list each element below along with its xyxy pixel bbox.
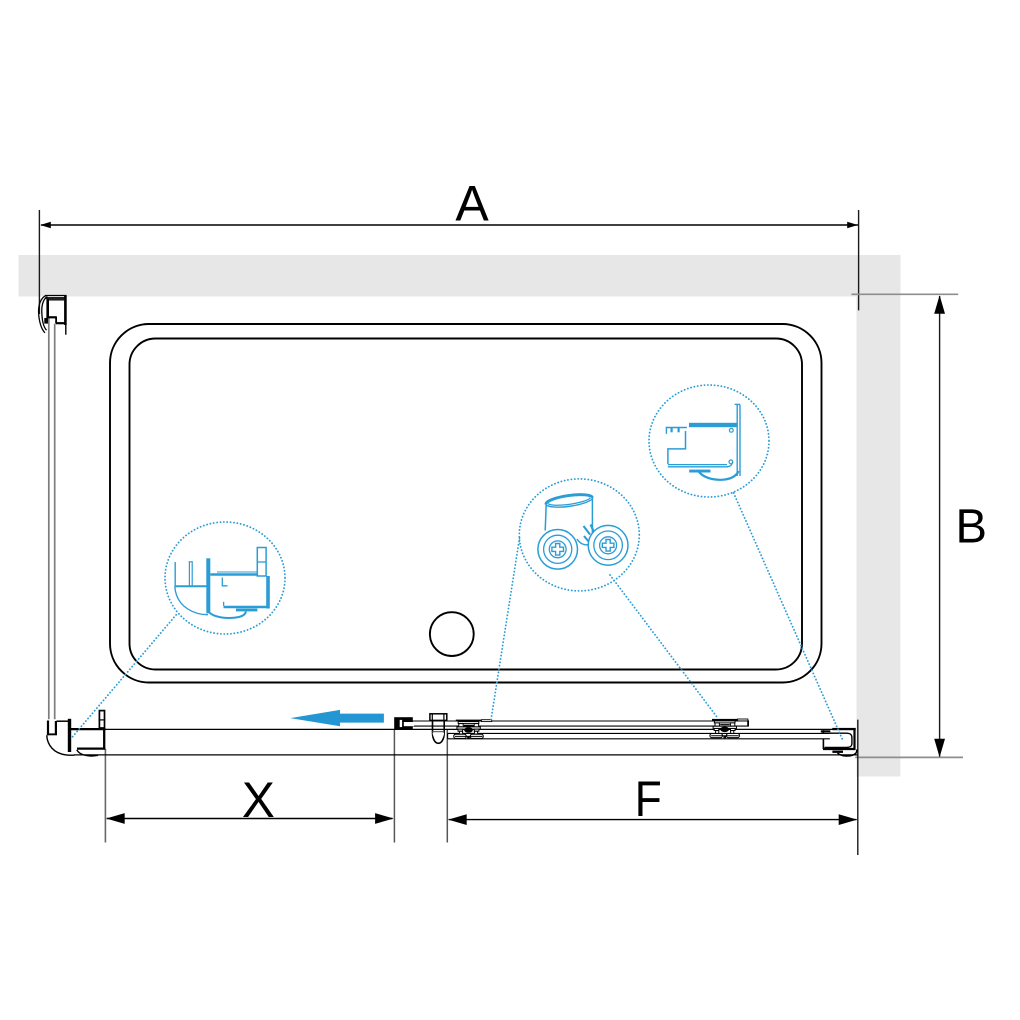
svg-text:A: A [455, 176, 489, 232]
svg-text:B: B [955, 500, 987, 553]
svg-text:F: F [635, 771, 662, 827]
svg-text:X: X [242, 772, 275, 828]
